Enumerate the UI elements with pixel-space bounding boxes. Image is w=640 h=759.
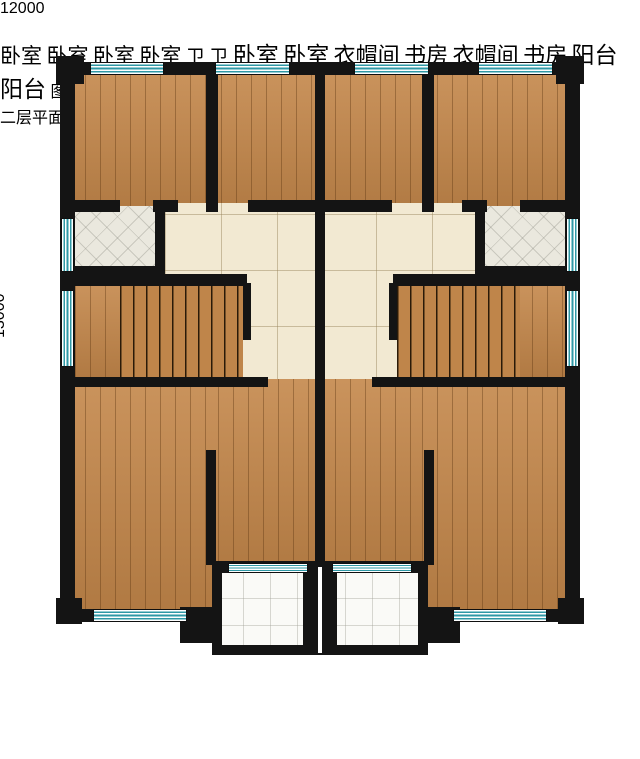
wall-room-divider bbox=[206, 450, 216, 565]
door-arc-bedroom bbox=[392, 170, 422, 200]
corner-block bbox=[56, 56, 84, 84]
dimension-line-left bbox=[36, 60, 38, 620]
wall-party bbox=[315, 62, 325, 565]
door-leaf bbox=[218, 170, 220, 200]
slippers bbox=[385, 122, 396, 129]
bed-pillow bbox=[92, 492, 106, 506]
stool bbox=[276, 546, 289, 559]
balcony-door-window bbox=[332, 563, 412, 573]
window bbox=[478, 62, 553, 75]
balcony-flowers bbox=[320, 598, 420, 654]
bed-pillow bbox=[91, 122, 104, 135]
bed-pillow bbox=[326, 79, 351, 96]
closet bbox=[433, 456, 445, 558]
door-leaf bbox=[309, 387, 311, 431]
wall-stair-side bbox=[389, 283, 397, 340]
extension-line bbox=[70, 2, 72, 54]
wall-segment bbox=[248, 200, 315, 212]
bed-pillow bbox=[536, 144, 549, 157]
wall-stair-top bbox=[62, 274, 247, 286]
bed-runner bbox=[164, 99, 173, 161]
bed-runner bbox=[467, 99, 476, 161]
bed bbox=[321, 104, 385, 168]
wall-bedroom-divider bbox=[206, 75, 218, 212]
bed-runner bbox=[469, 486, 480, 564]
potted-plant bbox=[524, 418, 570, 454]
bed-pillow bbox=[536, 122, 549, 135]
chair bbox=[271, 511, 294, 539]
wall-room-divider bbox=[424, 450, 434, 565]
closet bbox=[433, 86, 445, 162]
window bbox=[566, 218, 579, 272]
window bbox=[61, 290, 74, 367]
bed-headboard bbox=[75, 95, 87, 165]
window bbox=[215, 62, 290, 75]
bed-pillow bbox=[354, 79, 379, 96]
bed-headboard bbox=[553, 95, 565, 165]
potted-plant bbox=[70, 418, 116, 454]
door-leaf bbox=[434, 170, 436, 200]
dimension-line-top bbox=[60, 33, 585, 35]
wall-stair-top bbox=[393, 274, 578, 286]
stair-newel bbox=[114, 324, 123, 337]
bed-pillow bbox=[91, 144, 104, 157]
window bbox=[566, 290, 579, 367]
potted-plant bbox=[340, 240, 370, 268]
wardrobe bbox=[77, 385, 268, 401]
balcony-flowers bbox=[220, 598, 320, 654]
flower-pot bbox=[170, 580, 202, 604]
slippers bbox=[244, 122, 255, 129]
wardrobe bbox=[372, 385, 563, 401]
bed-runner bbox=[160, 486, 171, 564]
corner-block bbox=[556, 56, 584, 84]
bed-pillow bbox=[534, 520, 548, 534]
window bbox=[93, 609, 187, 622]
wall-stair-bottom bbox=[62, 377, 268, 387]
door-arc-bedroom bbox=[177, 170, 207, 200]
stair-winder bbox=[520, 284, 564, 378]
shower bbox=[524, 209, 567, 251]
window bbox=[61, 218, 74, 272]
potted-plant bbox=[270, 240, 300, 268]
flower-pot bbox=[438, 580, 470, 604]
window bbox=[354, 62, 429, 75]
stair-newel bbox=[517, 324, 526, 337]
dimension-value-width: 12000 bbox=[0, 0, 640, 18]
door-arc-bathroom bbox=[487, 212, 520, 245]
door-arc-cloakroom bbox=[268, 387, 312, 431]
bed-pillow bbox=[261, 79, 286, 96]
door-arc-cloakroom bbox=[328, 387, 372, 431]
door-leaf bbox=[204, 170, 206, 200]
bed-headboard bbox=[553, 480, 565, 568]
wall-segment bbox=[520, 200, 578, 212]
extension-line bbox=[2, 614, 46, 616]
corner-block bbox=[558, 598, 584, 624]
bed-pillow bbox=[289, 79, 314, 96]
wall-stair-bottom bbox=[372, 377, 578, 387]
floor-plan-canvas: 12000 13000 bbox=[0, 0, 640, 759]
dimension-value-height: 13000 bbox=[0, 0, 9, 338]
wardrobe bbox=[405, 443, 425, 559]
bed-pillow bbox=[92, 520, 106, 534]
stair-rail bbox=[397, 325, 519, 336]
window bbox=[90, 62, 164, 75]
slippers bbox=[385, 131, 396, 138]
bed-pillow bbox=[536, 100, 549, 113]
extension-line bbox=[575, 2, 577, 54]
bed-headboard bbox=[75, 480, 87, 568]
door-leaf bbox=[329, 387, 331, 431]
door-leaf bbox=[120, 212, 122, 245]
balcony-door-window bbox=[228, 563, 308, 573]
wall-stair-side bbox=[243, 283, 251, 340]
wall-segment bbox=[462, 200, 487, 212]
window bbox=[453, 609, 547, 622]
corner-block bbox=[56, 598, 82, 624]
door-leaf bbox=[420, 170, 422, 200]
stair-rail bbox=[121, 325, 243, 336]
bed-pillow bbox=[534, 492, 548, 506]
stool bbox=[351, 546, 364, 559]
door-arc-bathroom bbox=[120, 212, 153, 245]
wall-segment bbox=[153, 200, 178, 212]
slippers bbox=[244, 131, 255, 138]
door-arc-bedroom bbox=[218, 170, 248, 200]
door-leaf bbox=[518, 212, 520, 245]
wall-segment bbox=[325, 200, 392, 212]
chair bbox=[346, 511, 369, 539]
shower bbox=[73, 209, 116, 251]
wall-segment bbox=[62, 200, 120, 212]
wardrobe bbox=[215, 443, 235, 559]
bed-pillow bbox=[91, 100, 104, 113]
door-arc-bedroom bbox=[433, 170, 463, 200]
bed bbox=[255, 104, 319, 168]
